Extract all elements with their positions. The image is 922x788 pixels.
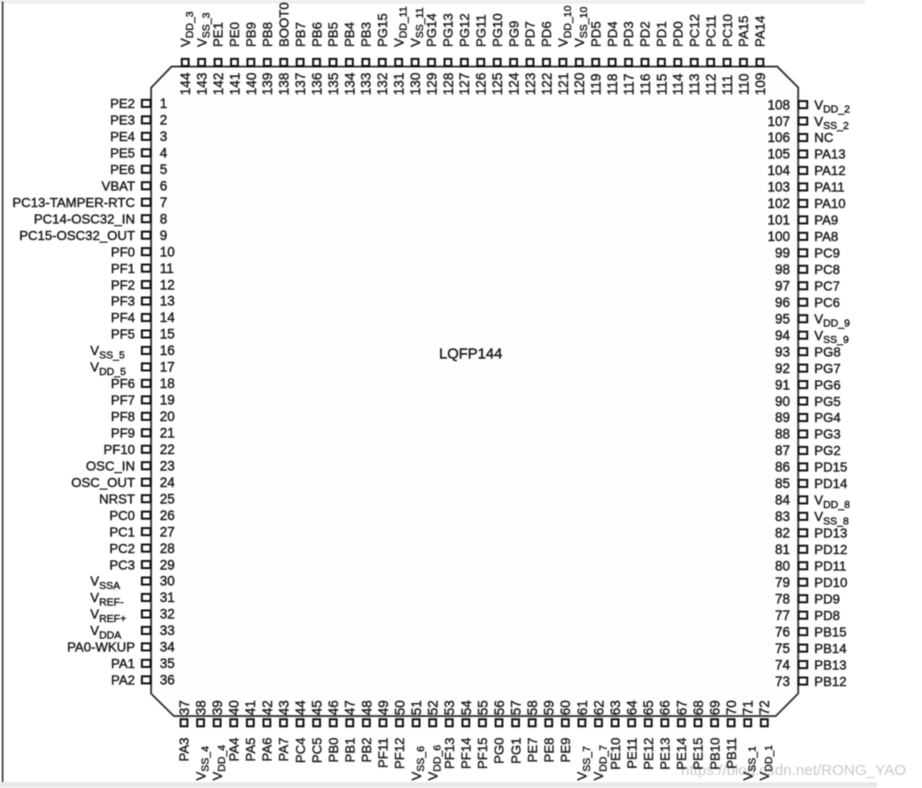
svg-text:PG4: PG4 [814,410,840,425]
svg-text:78: 78 [775,591,790,606]
svg-text:48: 48 [359,700,374,715]
svg-text:94: 94 [775,328,791,343]
svg-text:106: 106 [767,130,790,145]
svg-text:37: 37 [177,700,192,715]
svg-text:114: 114 [671,73,686,95]
svg-text:12: 12 [160,277,175,292]
svg-text:PA1: PA1 [111,656,135,671]
svg-text:PD7: PD7 [523,21,538,47]
svg-text:75: 75 [775,641,790,656]
svg-text:140: 140 [244,73,259,96]
svg-text:144: 144 [178,72,193,95]
svg-text:85: 85 [775,476,790,491]
svg-text:PG7: PG7 [814,361,840,376]
svg-text:PB10: PB10 [707,738,722,770]
svg-text:PD11: PD11 [814,558,846,573]
svg-text:80: 80 [775,558,790,573]
svg-text:117: 117 [621,74,636,96]
svg-text:PG6: PG6 [814,377,840,392]
svg-text:88: 88 [775,427,790,442]
svg-text:PF11: PF11 [376,738,391,769]
svg-text:9: 9 [160,228,168,243]
svg-text:PB15: PB15 [814,624,846,639]
svg-text:71: 71 [741,700,756,715]
svg-text:PB12: PB12 [814,674,846,689]
svg-text:25: 25 [160,491,175,506]
svg-text:PE15: PE15 [691,738,706,770]
svg-text:16: 16 [160,343,175,358]
svg-text:PF4: PF4 [111,310,135,325]
svg-text:2: 2 [160,113,168,128]
svg-text:27: 27 [160,524,175,539]
svg-text:32: 32 [160,607,175,622]
svg-text:PD3: PD3 [621,21,636,47]
svg-text:PD10: PD10 [814,575,847,590]
svg-text:PB13: PB13 [814,657,846,672]
svg-text:101: 101 [767,213,790,228]
svg-text:PC11: PC11 [703,15,718,47]
svg-text:PD8: PD8 [814,608,840,623]
svg-text:121: 121 [556,73,571,96]
svg-text:11: 11 [160,261,174,276]
svg-text:65: 65 [641,700,656,715]
svg-text:15: 15 [160,327,175,342]
svg-text:98: 98 [775,262,790,277]
svg-text:130: 130 [408,73,423,96]
svg-text:PC14-OSC32_IN: PC14-OSC32_IN [34,211,135,226]
svg-text:PE4: PE4 [110,129,135,144]
svg-text:116: 116 [638,74,653,96]
svg-text:PB4: PB4 [342,22,357,47]
svg-text:PA5: PA5 [243,738,258,762]
svg-text:4: 4 [160,146,168,161]
svg-text:PG2: PG2 [814,443,840,458]
svg-text:PB11: PB11 [724,738,739,769]
svg-text:21: 21 [160,426,175,441]
svg-text:PF7: PF7 [111,393,135,408]
svg-text:13: 13 [160,294,175,309]
svg-text:1: 1 [160,96,168,111]
svg-text:136: 136 [309,73,324,96]
svg-text:92: 92 [775,361,790,376]
svg-text:46: 46 [326,700,341,715]
svg-text:19: 19 [160,393,175,408]
svg-text:102: 102 [767,196,790,211]
svg-text:PF14: PF14 [459,738,474,770]
svg-text:PA12: PA12 [814,163,845,178]
svg-text:PF6: PF6 [111,376,135,391]
svg-text:LQFP144: LQFP144 [439,347,502,363]
svg-text:PC8: PC8 [814,262,840,277]
svg-text:PA13: PA13 [814,147,845,162]
svg-text:PA7: PA7 [276,738,291,762]
svg-text:PE7: PE7 [525,738,540,763]
svg-text:49: 49 [376,700,391,715]
svg-text:PF3: PF3 [111,294,135,309]
svg-text:100: 100 [767,229,790,244]
svg-text:PD9: PD9 [814,591,840,606]
svg-text:PC2: PC2 [109,541,135,556]
svg-text:61: 61 [575,700,590,715]
svg-text:95: 95 [775,311,790,326]
svg-text:18: 18 [160,376,175,391]
svg-text:120: 120 [572,73,587,96]
svg-text:41: 41 [243,700,258,715]
svg-text:PC13-TAMPER-RTC: PC13-TAMPER-RTC [12,195,135,210]
svg-text:133: 133 [359,73,374,96]
svg-text:45: 45 [310,700,325,715]
svg-text:20: 20 [160,409,175,424]
svg-text:30: 30 [160,574,175,589]
svg-text:PD5: PD5 [588,21,603,47]
svg-text:NC: NC [814,130,834,145]
svg-text:PA15: PA15 [736,16,751,47]
svg-text:PA0-WKUP: PA0-WKUP [67,640,135,655]
svg-text:PF8: PF8 [111,409,135,424]
svg-text:31: 31 [160,590,175,605]
svg-text:104: 104 [767,163,790,178]
svg-text:PF1: PF1 [111,261,135,276]
svg-text:PE10: PE10 [608,738,623,770]
svg-text:47: 47 [343,700,358,715]
svg-text:PA10: PA10 [814,196,845,211]
svg-text:PD0: PD0 [671,21,686,47]
svg-text:50: 50 [392,700,407,715]
svg-text:91: 91 [775,377,790,392]
svg-text:138: 138 [277,73,292,96]
svg-text:51: 51 [409,700,424,715]
svg-text:PF13: PF13 [442,738,457,770]
svg-text:39: 39 [210,700,225,715]
svg-text:PC1: PC1 [109,524,135,539]
svg-text:53: 53 [442,700,457,715]
svg-text:38: 38 [193,700,208,715]
svg-text:103: 103 [767,180,790,195]
svg-text:35: 35 [160,656,175,671]
svg-text:5: 5 [160,162,168,177]
svg-text:34: 34 [160,640,176,655]
svg-text:PE1: PE1 [211,22,226,47]
svg-text:123: 123 [523,73,538,96]
svg-text:PC10: PC10 [720,14,735,47]
svg-text:127: 127 [457,73,472,96]
svg-text:PC15-OSC32_OUT: PC15-OSC32_OUT [19,228,135,243]
svg-text:PE5: PE5 [110,146,135,161]
svg-text:122: 122 [539,73,554,96]
svg-text:PD4: PD4 [605,21,620,47]
svg-text:14: 14 [160,310,176,325]
svg-text:26: 26 [160,508,175,523]
svg-text:PF9: PF9 [111,426,135,441]
svg-text:PG11: PG11 [473,14,488,47]
svg-text:PE3: PE3 [110,113,135,128]
svg-text:56: 56 [492,700,507,715]
svg-text:PG8: PG8 [814,344,840,359]
svg-text:PE12: PE12 [641,738,656,770]
svg-text:PB2: PB2 [359,738,374,763]
svg-text:PG13: PG13 [441,13,456,47]
svg-text:PF12: PF12 [392,738,407,770]
svg-text:PC0: PC0 [109,508,135,523]
svg-text:PG14: PG14 [424,13,439,47]
svg-text:137: 137 [293,73,308,96]
svg-text:29: 29 [160,557,175,572]
svg-text:PB6: PB6 [309,22,324,47]
svg-text:128: 128 [441,73,456,96]
svg-text:PE2: PE2 [110,96,135,111]
svg-text:VBAT: VBAT [102,178,135,193]
svg-text:3: 3 [160,129,168,144]
svg-text:73: 73 [775,674,790,689]
svg-text:PB1: PB1 [343,738,358,763]
svg-text:PD6: PD6 [539,21,554,47]
svg-text:22: 22 [160,442,175,457]
svg-text:110: 110 [736,74,751,96]
svg-text:PG15: PG15 [375,13,390,47]
svg-text:109: 109 [753,73,768,96]
svg-text:96: 96 [775,295,790,310]
svg-text:143: 143 [195,73,210,96]
svg-text:PG1: PG1 [508,738,523,764]
svg-text:PF2: PF2 [111,277,135,292]
svg-text:24: 24 [160,475,176,490]
svg-text:PC9: PC9 [814,246,840,261]
svg-text:PG0: PG0 [492,738,507,764]
svg-text:33: 33 [160,623,175,638]
svg-text:OSC_OUT: OSC_OUT [71,475,135,490]
svg-text:PA14: PA14 [753,16,768,47]
svg-text:PF5: PF5 [111,327,135,342]
svg-text:125: 125 [490,73,505,96]
svg-text:PD1: PD1 [654,21,669,47]
svg-text:43: 43 [276,700,291,715]
svg-text:PB3: PB3 [359,22,374,47]
svg-text:135: 135 [326,73,341,96]
svg-text:10: 10 [160,244,175,259]
svg-text:108: 108 [767,97,790,112]
svg-text:112: 112 [704,74,719,96]
svg-text:PA8: PA8 [814,229,838,244]
svg-text:17: 17 [160,360,175,375]
svg-text:97: 97 [775,278,790,293]
svg-text:PB5: PB5 [326,22,341,47]
svg-text:70: 70 [724,700,739,715]
svg-text:124: 124 [507,72,522,95]
svg-text:PB8: PB8 [260,22,275,47]
svg-text:81: 81 [775,542,790,557]
svg-text:PA4: PA4 [226,738,241,762]
svg-text:131: 131 [392,73,407,96]
svg-text:126: 126 [474,73,489,96]
svg-text:90: 90 [775,394,790,409]
svg-text:139: 139 [260,73,275,96]
svg-text:132: 132 [375,73,390,96]
svg-text:PB7: PB7 [293,22,308,47]
svg-text:118: 118 [605,74,620,96]
svg-text:87: 87 [775,443,790,458]
svg-text:PG3: PG3 [814,427,840,442]
svg-text:59: 59 [542,700,557,715]
svg-text:119: 119 [589,74,604,96]
svg-text:63: 63 [608,700,623,715]
svg-text:BOOT0: BOOT0 [276,2,291,47]
svg-text:PF10: PF10 [103,442,135,457]
svg-text:42: 42 [260,700,275,715]
svg-text:PG9: PG9 [506,21,521,47]
svg-text:PC3: PC3 [109,557,135,572]
svg-text:PC5: PC5 [309,738,324,764]
svg-text:36: 36 [160,673,175,688]
svg-text:54: 54 [459,700,474,716]
svg-text:79: 79 [775,575,790,590]
svg-text:PD2: PD2 [638,21,653,47]
svg-text:PD15: PD15 [814,460,847,475]
svg-text:7: 7 [160,195,168,210]
svg-text:52: 52 [426,700,441,715]
svg-text:PB9: PB9 [244,22,259,47]
svg-text:PA6: PA6 [260,738,275,762]
svg-text:66: 66 [658,700,673,715]
svg-text:PC6: PC6 [814,295,840,310]
svg-text:82: 82 [775,526,790,541]
svg-text:OSC_IN: OSC_IN [86,458,135,473]
svg-text:141: 141 [227,73,242,96]
svg-text:PE9: PE9 [558,738,573,763]
svg-text:PD13: PD13 [814,526,847,541]
svg-text:115: 115 [654,74,669,96]
svg-text:84: 84 [775,493,791,508]
svg-text:28: 28 [160,541,175,556]
svg-text:76: 76 [775,624,790,639]
svg-text:86: 86 [775,460,790,475]
svg-text:PC7: PC7 [814,278,840,293]
svg-text:129: 129 [424,73,439,96]
svg-text:134: 134 [342,72,357,95]
svg-text:57: 57 [509,700,524,715]
svg-text:72: 72 [757,700,772,715]
svg-text:44: 44 [293,700,308,716]
svg-text:60: 60 [558,700,573,715]
svg-text:77: 77 [775,608,790,623]
svg-text:PC12: PC12 [687,14,702,47]
svg-text:PD12: PD12 [814,542,847,557]
svg-text:PF0: PF0 [111,244,135,259]
svg-text:PD14: PD14 [814,476,847,491]
svg-text:89: 89 [775,410,790,425]
svg-text:PE13: PE13 [658,738,673,770]
svg-text:PA11: PA11 [814,180,844,195]
svg-text:PB14: PB14 [814,641,846,656]
svg-text:55: 55 [475,700,490,715]
svg-text:PG12: PG12 [457,13,472,47]
svg-text:PG10: PG10 [490,13,505,47]
svg-text:6: 6 [160,178,168,193]
svg-text:PA2: PA2 [111,673,135,688]
svg-text:PB0: PB0 [326,738,341,763]
svg-text:PG5: PG5 [814,394,840,409]
svg-text:8: 8 [160,211,168,226]
svg-text:58: 58 [525,700,540,715]
svg-text:64: 64 [625,700,640,716]
svg-text:107: 107 [767,114,790,129]
svg-text:PE0: PE0 [227,22,242,47]
svg-text:PE14: PE14 [674,738,689,770]
svg-text:PC4: PC4 [293,738,308,764]
svg-text:68: 68 [691,700,706,715]
svg-text:62: 62 [591,700,606,715]
svg-text:PF15: PF15 [475,738,490,770]
svg-text:PE6: PE6 [110,162,135,177]
svg-text:113: 113 [687,74,702,96]
svg-text:PE11: PE11 [624,738,639,769]
svg-text:NRST: NRST [99,491,135,506]
svg-text:93: 93 [775,344,790,359]
svg-text:83: 83 [775,509,790,524]
svg-text:69: 69 [707,700,722,715]
svg-text:PA9: PA9 [814,213,838,228]
svg-text:111: 111 [720,75,735,96]
svg-text:PE8: PE8 [541,738,556,763]
svg-text:PA3: PA3 [177,738,192,762]
svg-text:40: 40 [227,700,242,715]
svg-text:74: 74 [775,657,791,672]
svg-text:105: 105 [767,147,790,162]
svg-text:142: 142 [211,73,226,96]
svg-text:67: 67 [674,700,689,715]
svg-text:99: 99 [775,246,790,261]
svg-text:23: 23 [160,458,175,473]
